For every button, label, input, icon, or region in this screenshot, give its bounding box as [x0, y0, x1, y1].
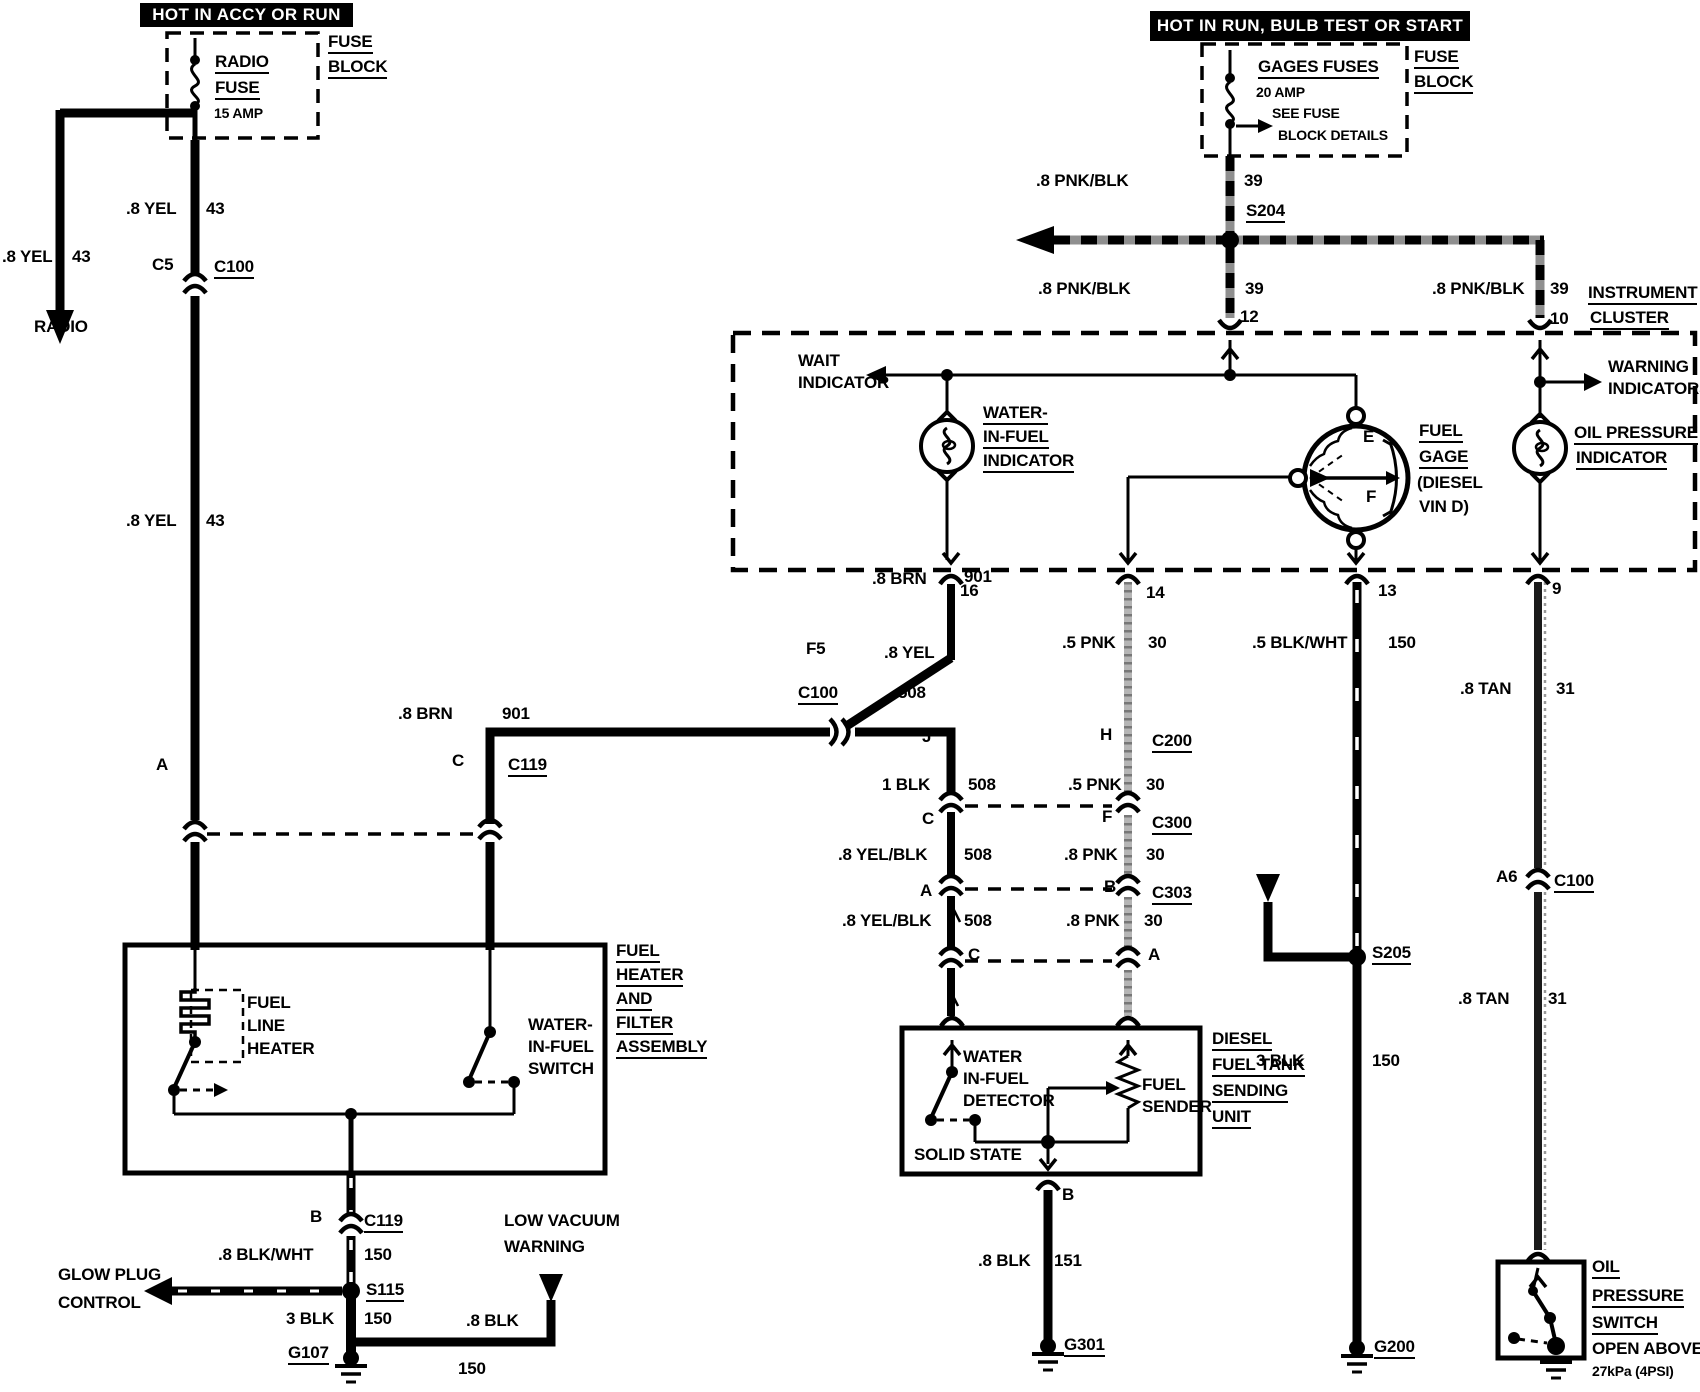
- sending-unit-label: UNIT: [1212, 1108, 1251, 1129]
- wire-label: .8 BRN: [398, 705, 453, 723]
- wire-circuit: 30: [1146, 776, 1165, 794]
- wire-label: .8 BLK: [978, 1252, 1031, 1270]
- warning-indicators-label: INDICATORS: [1608, 380, 1700, 398]
- connector-label: C100: [1554, 872, 1594, 893]
- wire-label: .8 BRN: [872, 570, 927, 588]
- connector-label: C100: [214, 258, 254, 279]
- wire-circuit: 901: [502, 705, 530, 723]
- fuse-block-label: FUSE: [1414, 48, 1459, 69]
- wif-switch-label: SWITCH: [528, 1060, 594, 1078]
- low-vacuum-arrow: [539, 1274, 563, 1302]
- wire-circuit: 508: [968, 776, 996, 794]
- assembly-label: HEATER: [616, 966, 683, 987]
- oil-indicator-label: OIL PRESSURE: [1574, 424, 1698, 445]
- wire-circuit: 150: [1372, 1052, 1400, 1070]
- s204-branch-arrow: [1016, 226, 1054, 254]
- pin-12: [1219, 320, 1241, 328]
- gages-fuses-note: BLOCK DETAILS: [1278, 128, 1388, 143]
- pin-label: C5: [152, 256, 173, 274]
- ground-label: G301: [1064, 1336, 1105, 1357]
- fuel-sender-label: SENDER: [1142, 1098, 1212, 1116]
- wire-circuit: 150: [458, 1360, 486, 1378]
- connector-c100-c5: [184, 274, 206, 293]
- assembly-label: ASSEMBLY: [616, 1038, 707, 1059]
- see-fuse-arrow: [1258, 119, 1273, 133]
- wire-circuit: 150: [1388, 634, 1416, 652]
- connector-b: [1117, 948, 1139, 967]
- wire-label: .8 PNK/BLK: [1036, 172, 1128, 190]
- wiring-diagram-canvas: [0, 0, 1700, 1392]
- wire-label: 3 BLK: [286, 1310, 334, 1328]
- wire-circuit: 43: [72, 248, 91, 266]
- wire-label: .8 BLK: [466, 1312, 519, 1330]
- wait-indicator-label: WAIT: [798, 352, 840, 370]
- wire-label: .8 YEL: [2, 248, 52, 266]
- oil-switch-label: OIL: [1592, 1258, 1620, 1279]
- wire-mid-column: [950, 812, 960, 1016]
- pin-number: 10: [1550, 310, 1569, 328]
- fuel-gage-label: GAGE: [1419, 448, 1468, 469]
- sending-unit-label: SENDING: [1212, 1082, 1288, 1103]
- wire-label: .8 PNK: [1064, 846, 1118, 864]
- ground-label: G107: [288, 1344, 329, 1365]
- pin-16: [940, 576, 962, 584]
- splice-label: S115: [366, 1281, 404, 1302]
- water-in-fuel-switch-blade: [469, 1032, 490, 1080]
- wire-label: .8 BLK/WHT: [218, 1246, 313, 1264]
- sending-unit-label: DIESEL: [1212, 1030, 1272, 1051]
- wire-label: .5 BLK/WHT: [1252, 634, 1347, 652]
- pin-label: F5: [806, 640, 825, 658]
- wif-switch-label: IN-FUEL: [528, 1038, 594, 1056]
- pin-label: B: [1104, 878, 1116, 896]
- connector-c-mid: [940, 876, 962, 895]
- fuel-line-heater-label: HEATER: [247, 1040, 314, 1058]
- fuel-line-heater-label: LINE: [247, 1017, 285, 1035]
- wire-circuit: 30: [1144, 912, 1163, 930]
- wire-circuit: 39: [1244, 172, 1263, 190]
- oil-pressure-indicator-lamp: [1514, 414, 1566, 482]
- oil-switch-label: PRESSURE: [1592, 1287, 1684, 1308]
- wire-label: .8 YEL: [126, 200, 176, 218]
- detector-label: DETECTOR: [963, 1092, 1055, 1110]
- pin-c-tank: [941, 1018, 963, 1026]
- connector-j: [940, 793, 962, 812]
- wire-circuit: 151: [1054, 1252, 1082, 1270]
- detector-label: WATER: [963, 1048, 1022, 1066]
- oil-switch-label: OPEN ABOVE: [1592, 1340, 1700, 1358]
- wiring-diagram: HOT IN ACCY OR RUN HOT IN RUN, BULB TEST…: [0, 0, 1700, 1392]
- wif-indicator-label: INDICATOR: [983, 452, 1074, 473]
- wire-label: .8 YEL: [884, 644, 934, 662]
- cluster-label: CLUSTER: [1590, 309, 1669, 330]
- wire-circuit: 30: [1148, 634, 1167, 652]
- gages-fuses-amp: 20 AMP: [1256, 85, 1305, 100]
- warning-indicators-label: WARNING: [1608, 358, 1689, 376]
- wire-circuit: 150: [364, 1310, 392, 1328]
- wire-tan-31: [1538, 582, 1545, 1250]
- wire-circuit: 150: [364, 1246, 392, 1264]
- splice-label: S205: [1372, 944, 1411, 965]
- banner-hot-in-accy: HOT IN ACCY OR RUN: [140, 3, 353, 27]
- oil-switch-label: 27kPa (4PSI): [1592, 1364, 1674, 1379]
- connector-label: C300: [1152, 814, 1192, 835]
- wire-label: .8 YEL/BLK: [838, 846, 927, 864]
- wire-circuit: 508: [964, 846, 992, 864]
- connector-a-left: [184, 822, 206, 841]
- fuel-gage-label: VIN D): [1419, 498, 1469, 516]
- wire-circuit: 43: [206, 512, 225, 530]
- dashed-links-mid: [965, 806, 1112, 961]
- ground-label: G200: [1374, 1338, 1415, 1359]
- connector-label: C303: [1152, 884, 1192, 905]
- wire-label: .5 PNK: [1068, 776, 1122, 794]
- assembly-label: FUEL: [616, 942, 660, 963]
- pin-label: A: [920, 882, 932, 900]
- fuse-block-label: BLOCK: [328, 58, 387, 79]
- fuel-sender-label: FUEL: [1142, 1076, 1186, 1094]
- pin-number: 9: [1552, 580, 1561, 598]
- connector-c100-a6: [1527, 870, 1549, 889]
- gages-fuses-label: GAGES FUSES: [1258, 58, 1379, 79]
- solid-state-label: SOLID STATE: [914, 1146, 1022, 1164]
- pin-label: C: [922, 810, 934, 828]
- pin-a-tank: [1117, 1018, 1139, 1026]
- pin-label: B: [1062, 1186, 1074, 1204]
- low-vacuum-label: LOW VACUUM: [504, 1212, 620, 1230]
- wire-label: .8 TAN: [1458, 990, 1509, 1008]
- pin-label: J: [922, 728, 931, 746]
- connector-f: [1117, 876, 1139, 895]
- connector-label: C100: [798, 684, 838, 705]
- wait-indicator-label: INDICATOR: [798, 374, 889, 392]
- pin-number: 16: [960, 582, 979, 600]
- wire-label: .8 TAN: [1460, 680, 1511, 698]
- splice-label: S204: [1246, 202, 1285, 223]
- sending-unit-label: FUEL TANK: [1212, 1056, 1305, 1077]
- pin-b-tank: [1037, 1182, 1059, 1190]
- wif-indicator-label: IN-FUEL: [983, 428, 1049, 449]
- fuel-line-heater-element: [181, 988, 209, 1040]
- wire-yel-43-radio: [46, 110, 195, 344]
- radio-fuse-label: FUSE: [215, 79, 260, 100]
- pin-10: [1529, 320, 1551, 328]
- fuse-block-label: BLOCK: [1414, 73, 1473, 94]
- assembly-label: FILTER: [616, 1014, 673, 1035]
- gage-scale-e: E: [1363, 428, 1374, 446]
- connector-label: C200: [1152, 732, 1192, 753]
- oil-switch-label: SWITCH: [1592, 1314, 1658, 1335]
- oil-pressure-switch: [1498, 1254, 1584, 1378]
- pin-label: A: [1148, 946, 1160, 964]
- assembly-label: AND: [616, 990, 652, 1011]
- gage-scale-f: F: [1366, 488, 1376, 506]
- pin-label: H: [1100, 726, 1112, 744]
- wire-circuit: 30: [1146, 846, 1165, 864]
- fuse-block-label: FUSE: [328, 33, 373, 54]
- connector-a-mid: [940, 948, 962, 967]
- connector-label: C119: [508, 756, 547, 777]
- connector-label: C119: [364, 1212, 403, 1233]
- warning-indicators-arrow: [1584, 373, 1602, 391]
- wire-label: .5 PNK: [1062, 634, 1116, 652]
- wire-label: .8 PNK/BLK: [1432, 280, 1524, 298]
- wire-circuit: 508: [898, 684, 926, 702]
- gages-fuses-note: SEE FUSE: [1272, 106, 1340, 121]
- connector-h: [1117, 793, 1139, 812]
- radio-fuse-amp: 15 AMP: [214, 106, 263, 121]
- wire-label: 1 BLK: [882, 776, 930, 794]
- pin-label: F: [1102, 808, 1112, 826]
- cluster-label: INSTRUMENT: [1588, 284, 1697, 305]
- oil-indicator-label: INDICATOR: [1576, 449, 1667, 470]
- wire-label: .8 PNK: [1066, 912, 1120, 930]
- pin-label: C: [452, 752, 464, 770]
- pin-number: 13: [1378, 582, 1397, 600]
- wire-label: .8 YEL/BLK: [842, 912, 931, 930]
- pin-number: 14: [1146, 584, 1165, 602]
- glow-plug-label: CONTROL: [58, 1294, 141, 1312]
- water-in-fuel-detector-blade: [931, 1072, 952, 1118]
- fuel-line-heater-label: FUEL: [247, 994, 291, 1012]
- wire-circuit: 39: [1245, 280, 1264, 298]
- s115-splice: [144, 1277, 360, 1305]
- fuel-gage-symbol: [1290, 408, 1408, 548]
- water-in-fuel-indicator-lamp: [921, 412, 973, 480]
- wif-indicator-label: WATER-: [983, 404, 1048, 425]
- wire-label: .8 YEL: [126, 512, 176, 530]
- wire-circuit: 43: [206, 200, 225, 218]
- glow-plug-label: GLOW PLUG: [58, 1266, 161, 1284]
- g301-ground: [1032, 1190, 1064, 1370]
- pin-label: A6: [1496, 868, 1517, 886]
- g200-ground: [1341, 1340, 1373, 1372]
- wire-label: .8 PNK/BLK: [1038, 280, 1130, 298]
- detector-label: IN-FUEL: [963, 1070, 1029, 1088]
- connector-c119-b: [340, 1214, 362, 1233]
- wire-circuit: 508: [964, 912, 992, 930]
- radio-destination: RADIO: [34, 318, 88, 336]
- fuel-sender-resistor: [1118, 1056, 1138, 1108]
- s205-splice: [1256, 874, 1366, 966]
- s204-splice-dot: [1221, 231, 1239, 249]
- radio-fuse-label: RADIO: [215, 53, 269, 74]
- wire-circuit: 31: [1556, 680, 1575, 698]
- banner-hot-in-run: HOT IN RUN, BULB TEST OR START: [1150, 11, 1470, 41]
- fuel-gage-label: FUEL: [1419, 422, 1463, 443]
- low-vacuum-label: WARNING: [504, 1238, 585, 1256]
- pin-label: B: [310, 1208, 322, 1226]
- fuel-gage-label: (DIESEL: [1417, 474, 1483, 492]
- wire-circuit: 31: [1548, 990, 1567, 1008]
- pin-label: A: [156, 756, 168, 774]
- fuel-line-heater-switch: [174, 1042, 195, 1088]
- wif-switch-label: WATER-: [528, 1016, 593, 1034]
- pin-label: C: [968, 946, 980, 964]
- g107-ground: [335, 1291, 367, 1382]
- pin-number: 12: [1240, 308, 1259, 326]
- wire-circuit: 39: [1550, 280, 1569, 298]
